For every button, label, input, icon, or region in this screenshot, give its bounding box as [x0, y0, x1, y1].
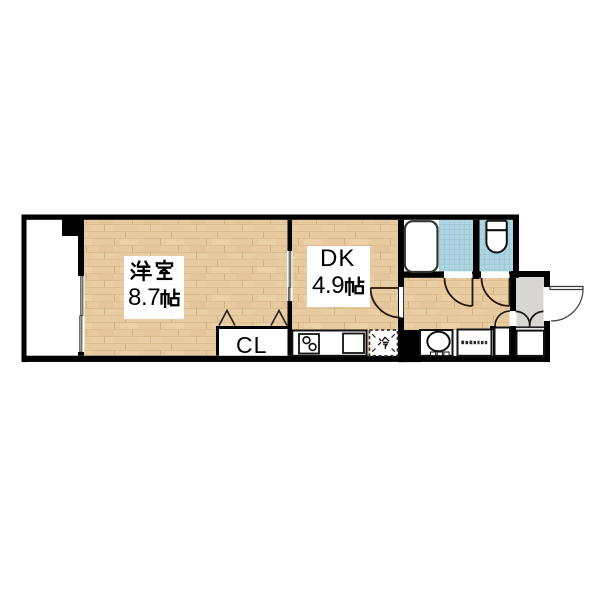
svg-text:DK: DK [320, 245, 355, 272]
svg-text:8.7: 8.7 [128, 284, 160, 311]
svg-text:CL: CL [236, 332, 267, 358]
svg-text:4.9: 4.9 [312, 272, 344, 299]
